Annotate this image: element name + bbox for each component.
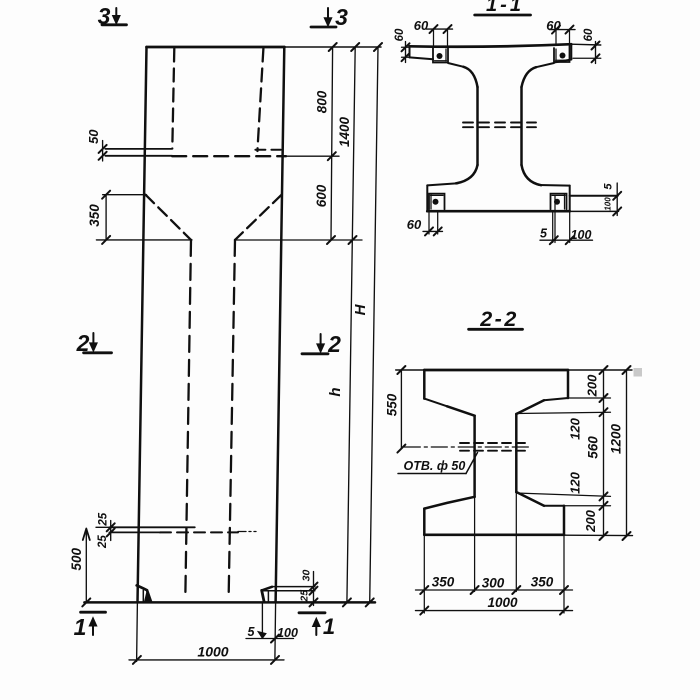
svg-text:120: 120 [568,417,583,439]
svg-text:25: 25 [98,512,110,526]
svg-text:2-2: 2-2 [479,307,519,331]
svg-text:100: 100 [277,626,298,640]
svg-text:1200: 1200 [609,423,624,454]
svg-text:350: 350 [531,575,554,590]
svg-text:30: 30 [301,570,313,582]
svg-text:5: 5 [603,183,615,190]
svg-text:200: 200 [585,374,600,397]
svg-text:1000: 1000 [197,644,228,660]
svg-text:1400: 1400 [337,116,352,147]
svg-text:ОТВ. ф 50: ОТВ. ф 50 [404,459,466,473]
svg-text:350: 350 [432,575,455,590]
svg-text:1: 1 [74,614,87,640]
svg-text:560: 560 [586,436,601,459]
svg-text:5: 5 [540,227,548,241]
svg-text:300: 300 [482,576,505,591]
svg-text:500: 500 [69,548,84,571]
svg-text:5: 5 [248,625,256,639]
svg-text:60: 60 [546,18,561,33]
svg-text:800: 800 [315,90,330,113]
svg-text:1: 1 [323,614,335,639]
svg-text:H: H [352,303,369,315]
svg-text:25: 25 [299,590,311,603]
svg-text:600: 600 [314,184,329,207]
svg-text:1000: 1000 [487,595,518,610]
svg-text:60: 60 [407,217,422,232]
svg-text:50: 50 [86,129,101,144]
svg-text:25: 25 [97,535,109,549]
svg-text:h: h [327,387,344,396]
svg-text:200: 200 [583,509,598,532]
svg-text:100: 100 [571,228,592,242]
svg-text:100: 100 [604,197,613,211]
svg-text:120: 120 [568,471,583,493]
svg-text:550: 550 [385,393,400,416]
svg-text:60: 60 [394,28,406,41]
svg-text:60: 60 [414,18,429,33]
svg-text:350: 350 [87,204,102,227]
svg-text:60: 60 [583,28,595,41]
